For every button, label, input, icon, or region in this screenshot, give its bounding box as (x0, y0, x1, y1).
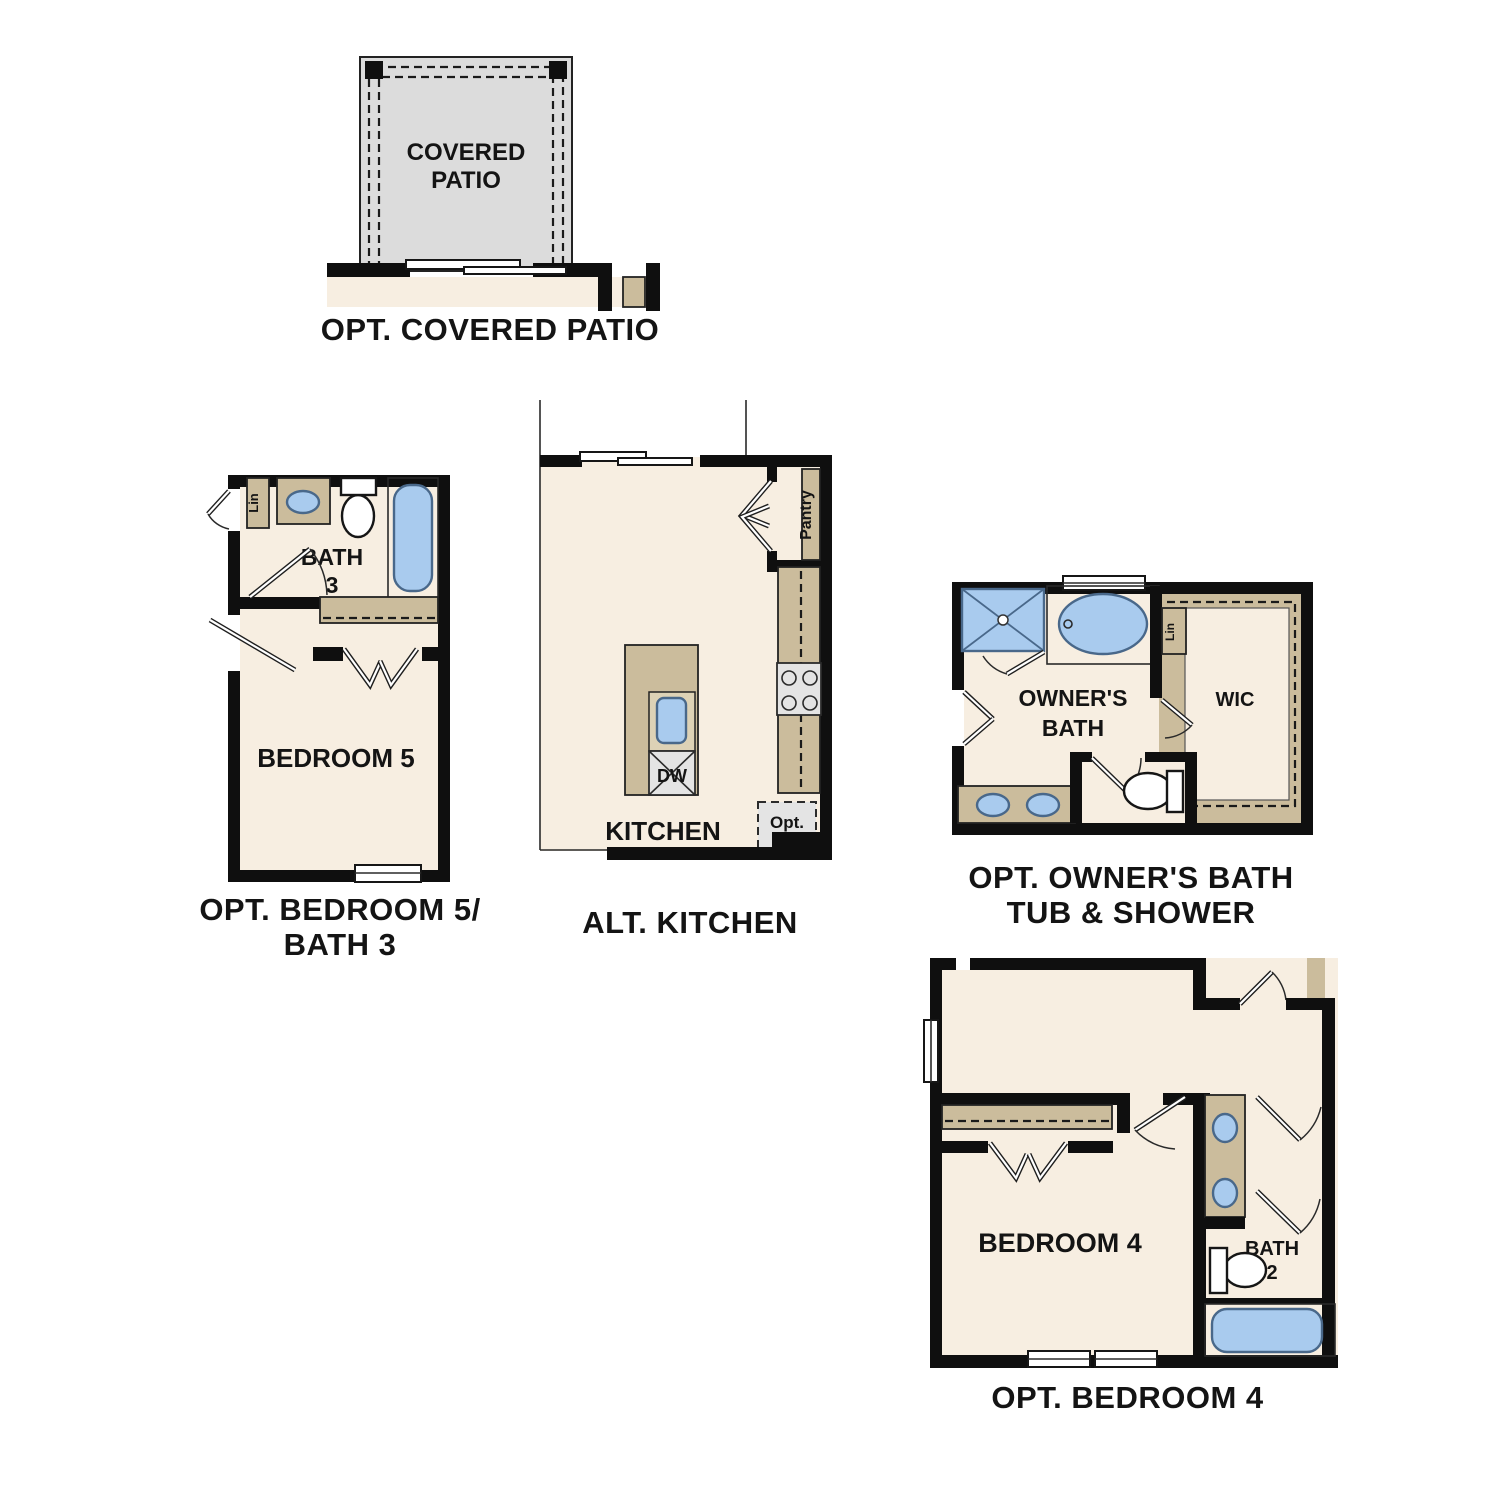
wall (1322, 998, 1335, 1368)
door-arc (208, 514, 229, 529)
toilet-tank (1167, 771, 1183, 812)
bath3-label: BATH (301, 544, 363, 570)
wall (1301, 582, 1313, 835)
wall (930, 958, 1198, 970)
covered-patio-caption: OPT. COVERED PATIO (300, 312, 680, 347)
wall (1145, 752, 1190, 762)
covered-patio-plan: COVERED PATIO (320, 48, 670, 313)
wall (598, 263, 612, 311)
wall (438, 475, 450, 882)
wall-break (956, 958, 970, 970)
dishwasher-label: DW (657, 766, 687, 786)
room-floor (930, 958, 1338, 1368)
bedroom5-label: BEDROOM 5 (257, 743, 414, 773)
bedroom4-plan: BATH 2 BEDROOM 4 (920, 950, 1340, 1375)
wall (1286, 998, 1322, 1010)
patio-room-label: COVERED (407, 139, 526, 166)
wall-column (623, 277, 645, 307)
owners-bath-label: BATH (1042, 715, 1104, 741)
wall (1193, 1093, 1206, 1368)
wall (1070, 752, 1092, 762)
window (618, 458, 692, 465)
sliding-door (464, 267, 566, 274)
patio-post (365, 61, 383, 79)
bedroom4-label: BEDROOM 4 (978, 1228, 1142, 1258)
caption-line: BATH 3 (180, 927, 500, 962)
bathtub (1212, 1309, 1322, 1352)
wall (820, 455, 832, 860)
wall (1193, 998, 1240, 1010)
wall (942, 1141, 988, 1153)
bath2-label: 2 (1266, 1262, 1277, 1284)
bedroom4-caption: OPT. BEDROOM 4 (955, 1380, 1300, 1415)
sink (977, 794, 1009, 816)
door-opening (228, 489, 240, 531)
wall (228, 475, 240, 882)
wall (1150, 586, 1162, 698)
wall (327, 263, 410, 277)
sink (1213, 1114, 1237, 1142)
wall (1068, 1141, 1113, 1153)
toilet-tank (1210, 1248, 1227, 1293)
wall (767, 467, 777, 482)
kitchen-sink (657, 698, 686, 743)
wall (540, 455, 582, 467)
wall (1205, 1298, 1335, 1304)
caption-line: OPT. BEDROOM 5/ (180, 892, 500, 927)
pantry-label: Pantry (798, 490, 815, 540)
linen-label: Lin (1163, 623, 1177, 641)
closet-shelf (942, 1105, 1112, 1129)
caption-line: OPT. OWNER'S BATH (950, 860, 1312, 895)
caption-line: TUB & SHOWER (950, 895, 1312, 930)
toilet-tank (341, 478, 376, 495)
wall (313, 647, 343, 661)
kitchen-label: KITCHEN (605, 816, 721, 846)
patio-room-label: PATIO (431, 167, 501, 194)
sink (1213, 1179, 1237, 1207)
floor-plan-sheet: { "page_title": "Floor Plan Options", "c… (0, 0, 1500, 1500)
wall (228, 597, 320, 609)
toilet (1224, 1253, 1266, 1287)
sink (287, 491, 319, 513)
owners-bath-caption: OPT. OWNER'S BATH TUB & SHOWER (950, 860, 1312, 930)
door-opening (952, 690, 964, 746)
bedroom5-bath3-caption: OPT. BEDROOM 5/ BATH 3 (180, 892, 500, 962)
wall (607, 847, 777, 860)
bedroom5-bath3-plan: Lin BATH 3 BEDROOM 5 (200, 465, 460, 890)
wall (422, 647, 438, 661)
wall (1205, 1217, 1245, 1229)
linen-label: Lin (246, 493, 261, 513)
alt-kitchen-caption: ALT. KITCHEN (530, 905, 850, 940)
wall (1070, 752, 1082, 823)
door-opening (228, 615, 240, 671)
bathtub (394, 485, 432, 591)
wall (700, 455, 832, 467)
toilet (1124, 773, 1172, 809)
toilet (342, 495, 374, 537)
wall (942, 1093, 1117, 1105)
owners-bath-plan: Lin OWNER'S BATH WIC (945, 572, 1320, 872)
wall-fill (1307, 958, 1325, 998)
wall (646, 263, 660, 311)
wall (772, 832, 832, 860)
patio-post (549, 61, 567, 79)
wall (1185, 752, 1197, 823)
wic-label: WIC (1216, 689, 1255, 711)
owners-bath-label: OWNER'S (1019, 685, 1128, 711)
wall (1117, 1093, 1130, 1133)
opt-ref-label: Opt. (770, 813, 804, 832)
shower-drain (998, 615, 1008, 625)
wall (952, 823, 1313, 835)
sink (1027, 794, 1059, 816)
alt-kitchen-plan: Pantry DW Opt. Ref KITCHEN (530, 395, 865, 870)
